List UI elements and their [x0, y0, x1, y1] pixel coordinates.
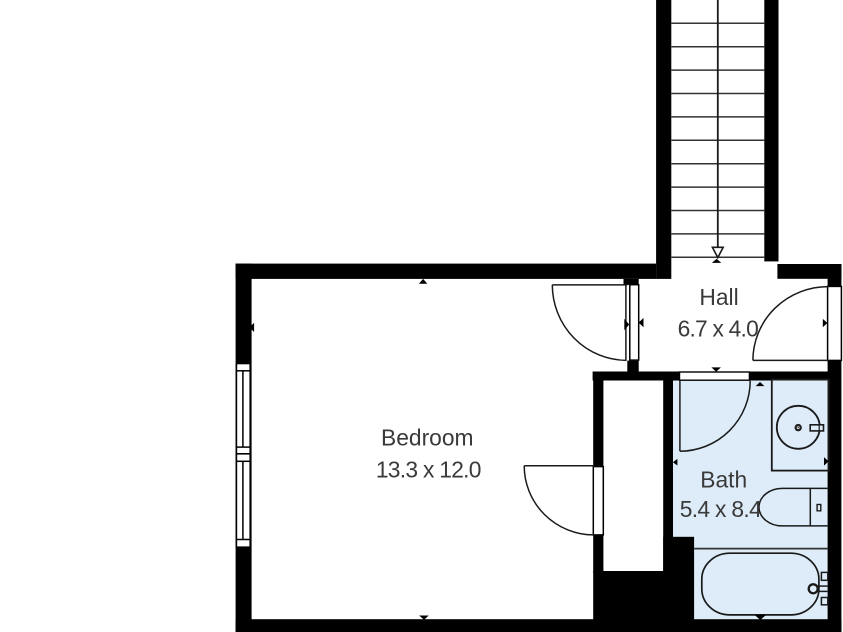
- svg-text:6.7 x 4.0: 6.7 x 4.0: [678, 316, 759, 342]
- svg-text:13.3 x 12.0: 13.3 x 12.0: [376, 456, 481, 482]
- svg-text:Hall: Hall: [699, 284, 738, 310]
- svg-text:5.4 x 8.4: 5.4 x 8.4: [680, 496, 762, 522]
- svg-text:Bedroom: Bedroom: [381, 425, 474, 451]
- svg-text:Bath: Bath: [700, 466, 747, 492]
